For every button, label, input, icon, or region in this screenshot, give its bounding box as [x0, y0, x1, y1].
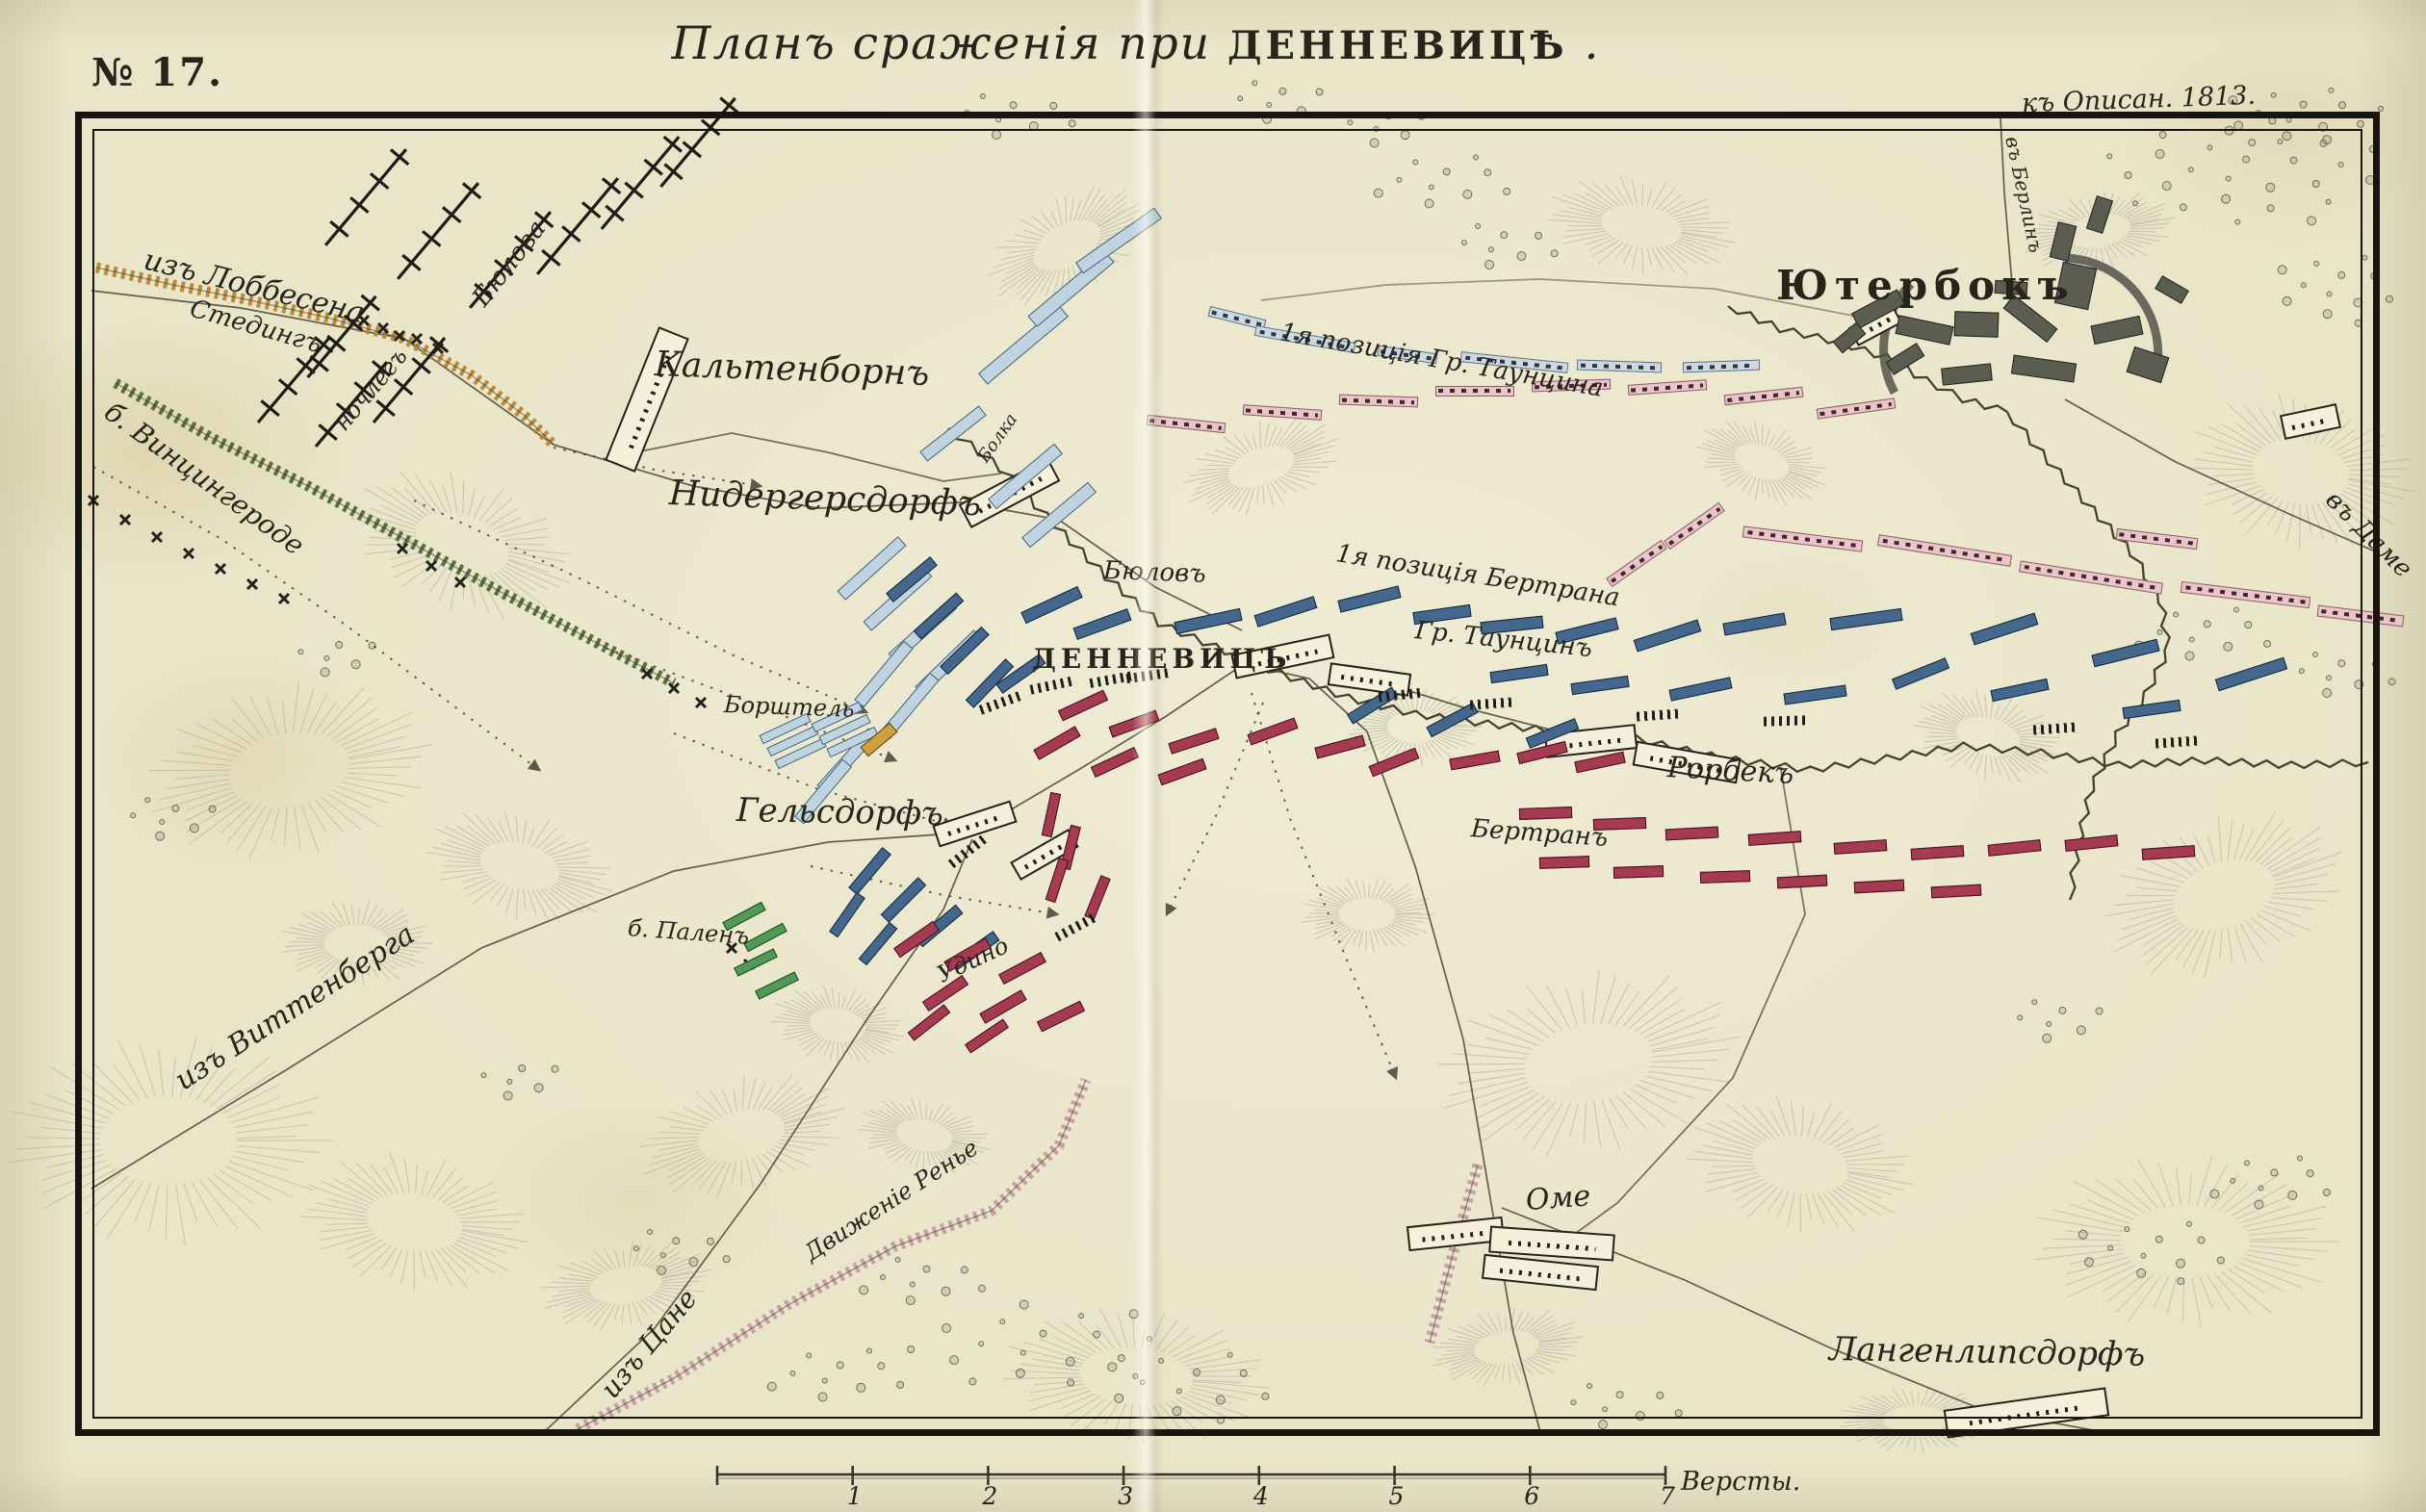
scale-tick-label: 1 — [847, 1482, 863, 1510]
map-title-script: Планъ сраженія при — [672, 17, 1227, 70]
unit-marker-c — [1700, 870, 1750, 884]
map-label: Лангенлипсдорфъ — [1829, 1330, 2146, 1374]
scale-tick-label: 5 — [1389, 1482, 1405, 1510]
unit-marker-lbd — [1683, 359, 1760, 372]
unit-marker-p — [1339, 394, 1418, 407]
map-label: ДЕННЕВИЦЪ — [1032, 643, 1291, 675]
rivers — [948, 306, 2368, 900]
infantry-hatch-mark — [1764, 715, 1808, 727]
map-title-period: . — [1568, 17, 1601, 70]
unit-marker-c — [1613, 865, 1664, 879]
map-label: Оме — [1525, 1179, 1592, 1217]
map-label: Ютербокъ — [1776, 262, 2076, 309]
unit-marker-p — [1435, 386, 1514, 397]
scale-tick-label: 7 — [1660, 1482, 1675, 1510]
map-label: Бюловъ — [1102, 556, 1206, 589]
map-content: изъ ЛоббесенаСтедингъБюлованочлегъб. Вин… — [0, 0, 2426, 1512]
scale-tick-label: 4 — [1253, 1482, 1269, 1510]
map-sheet: № 17. Планъ сраженія при ДЕННЕВИЦѢ . къ … — [0, 0, 2426, 1512]
unit-marker-c — [1539, 856, 1589, 869]
scale-tick-label: 6 — [1524, 1482, 1539, 1510]
town-block — [1954, 311, 2000, 338]
scale-unit-label: Версты. — [1681, 1467, 1800, 1497]
map-title: Планъ сраженія при ДЕННЕВИЦѢ . — [578, 17, 1694, 70]
scale-tick-label: 2 — [982, 1482, 997, 1510]
map-label: Гельсдорфъ — [736, 791, 944, 833]
sheet-number: № 17. — [91, 50, 223, 95]
map-label: Рорбекъ — [1666, 751, 1794, 791]
scale-tick-label: 3 — [1118, 1482, 1133, 1510]
map-label: Борштель — [724, 691, 855, 723]
map-title-emphasis: ДЕННЕВИЦѢ — [1227, 23, 1568, 68]
